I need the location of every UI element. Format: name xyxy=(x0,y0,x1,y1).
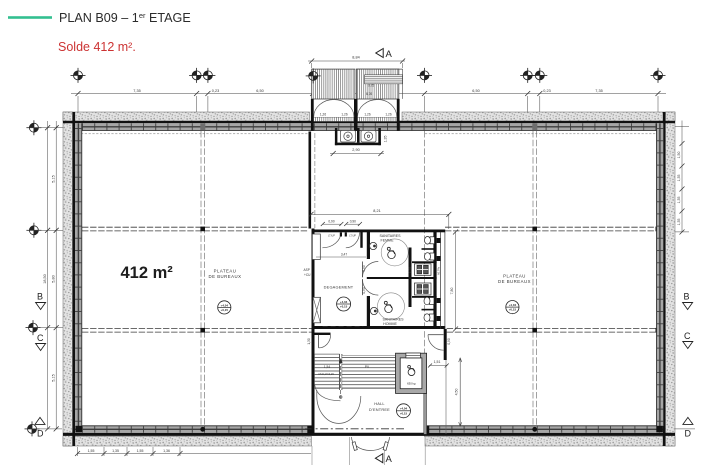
svg-text:DE BUREAUX: DE BUREAUX xyxy=(498,279,531,284)
svg-text:2,90: 2,90 xyxy=(352,148,359,152)
svg-text:1,26: 1,26 xyxy=(320,113,326,117)
svg-text:C: C xyxy=(684,331,691,341)
svg-text:DEGAGEMENT: DEGAGEMENT xyxy=(324,285,354,290)
svg-text:LT./UP: LT./UP xyxy=(349,235,356,237)
svg-text:C: C xyxy=(37,333,44,343)
svg-text:1,30: 1,30 xyxy=(307,338,311,344)
svg-text:0,90: 0,90 xyxy=(362,265,366,271)
svg-text:1,35: 1,35 xyxy=(384,136,388,143)
svg-text:1,55: 1,55 xyxy=(88,449,95,453)
svg-text:1,54: 1,54 xyxy=(324,365,330,369)
svg-text:HALL: HALL xyxy=(374,401,385,406)
svg-text:0,23: 0,23 xyxy=(212,89,219,93)
svg-text:5,80: 5,80 xyxy=(51,275,55,282)
svg-text:B: B xyxy=(37,292,43,302)
svg-text:0,90: 0,90 xyxy=(350,219,356,223)
svg-text:+4,04: +4,04 xyxy=(509,303,517,307)
svg-text:DE BUREAUX: DE BUREAUX xyxy=(209,274,242,279)
svg-text:0,90: 0,90 xyxy=(447,338,451,344)
svg-text:412 m²: 412 m² xyxy=(121,264,174,282)
svg-text:1,51: 1,51 xyxy=(434,360,441,364)
svg-text:1,70: 1,70 xyxy=(408,267,412,273)
svg-text:+0,15: +0,15 xyxy=(400,411,408,415)
svg-text:PLATEAU: PLATEAU xyxy=(214,269,237,274)
svg-text:+0,15: +0,15 xyxy=(221,308,229,312)
svg-text:+4,04: +4,04 xyxy=(221,303,229,307)
svg-text:1,26: 1,26 xyxy=(364,113,370,117)
svg-text:1,35: 1,35 xyxy=(112,449,119,453)
svg-text:0,90: 0,90 xyxy=(328,219,334,223)
svg-text:5,15: 5,15 xyxy=(51,175,55,182)
svg-text:HOMME: HOMME xyxy=(383,322,397,326)
svg-text:6,76: 6,76 xyxy=(366,92,372,96)
svg-text:1,50: 1,50 xyxy=(677,152,681,159)
svg-text:7,80: 7,80 xyxy=(450,288,454,295)
svg-text:3,47: 3,47 xyxy=(341,252,347,256)
svg-text:0,23: 0,23 xyxy=(543,89,550,93)
svg-text:1,26: 1,26 xyxy=(385,113,391,117)
svg-text:+4,04: +4,04 xyxy=(400,407,408,411)
svg-text:D'ENTREE: D'ENTREE xyxy=(369,407,390,412)
svg-text:6,50: 6,50 xyxy=(472,89,479,93)
svg-text:D: D xyxy=(685,429,692,439)
svg-text:4,50: 4,50 xyxy=(455,389,459,396)
svg-text:A: A xyxy=(386,49,393,60)
svg-text:5,15: 5,15 xyxy=(51,374,55,381)
svg-text:PLAN B09 – 1er ETAGE: PLAN B09 – 1er ETAGE xyxy=(59,11,191,25)
svg-text:6,50: 6,50 xyxy=(256,89,263,93)
svg-text:0,90: 0,90 xyxy=(362,287,366,293)
svg-text:1,35: 1,35 xyxy=(677,197,681,204)
svg-text:17x0,17x0,26: 17x0,17x0,26 xyxy=(318,372,334,376)
svg-text:0,75: 0,75 xyxy=(368,84,374,88)
svg-text:Solde 412 m².: Solde 412 m². xyxy=(58,40,136,54)
svg-text:1,55: 1,55 xyxy=(137,449,144,453)
svg-text:7,35: 7,35 xyxy=(133,89,140,93)
svg-text:+4,04: +4,04 xyxy=(340,300,348,304)
svg-text:+0,15: +0,15 xyxy=(340,305,348,309)
svg-text:SANITAIRES: SANITAIRES xyxy=(379,234,401,238)
svg-text:LT./UP: LT./UP xyxy=(328,235,335,237)
svg-text:1,36: 1,36 xyxy=(163,449,170,453)
svg-text:+0,15: +0,15 xyxy=(509,308,517,312)
svg-text:7,35: 7,35 xyxy=(595,89,602,93)
svg-text:A0,7Pa: A0,7Pa xyxy=(438,266,441,275)
svg-text:1,35: 1,35 xyxy=(677,219,681,226)
svg-text:B: B xyxy=(684,292,690,302)
svg-text:A: A xyxy=(386,454,393,465)
svg-text:PLATEAU: PLATEAU xyxy=(503,274,526,279)
svg-text:630 kg: 630 kg xyxy=(407,382,416,386)
svg-text:18,50: 18,50 xyxy=(43,274,47,284)
svg-text:ASP: ASP xyxy=(304,268,310,272)
svg-text:SANITAIRES: SANITAIRES xyxy=(382,318,404,322)
svg-text:+CU: +CU xyxy=(304,273,311,277)
svg-text:8,21: 8,21 xyxy=(373,209,380,213)
svg-text:1,35: 1,35 xyxy=(677,175,681,182)
svg-text:8,84: 8,84 xyxy=(352,56,359,60)
svg-text:1,26: 1,26 xyxy=(341,113,347,117)
svg-text:D: D xyxy=(37,429,44,439)
